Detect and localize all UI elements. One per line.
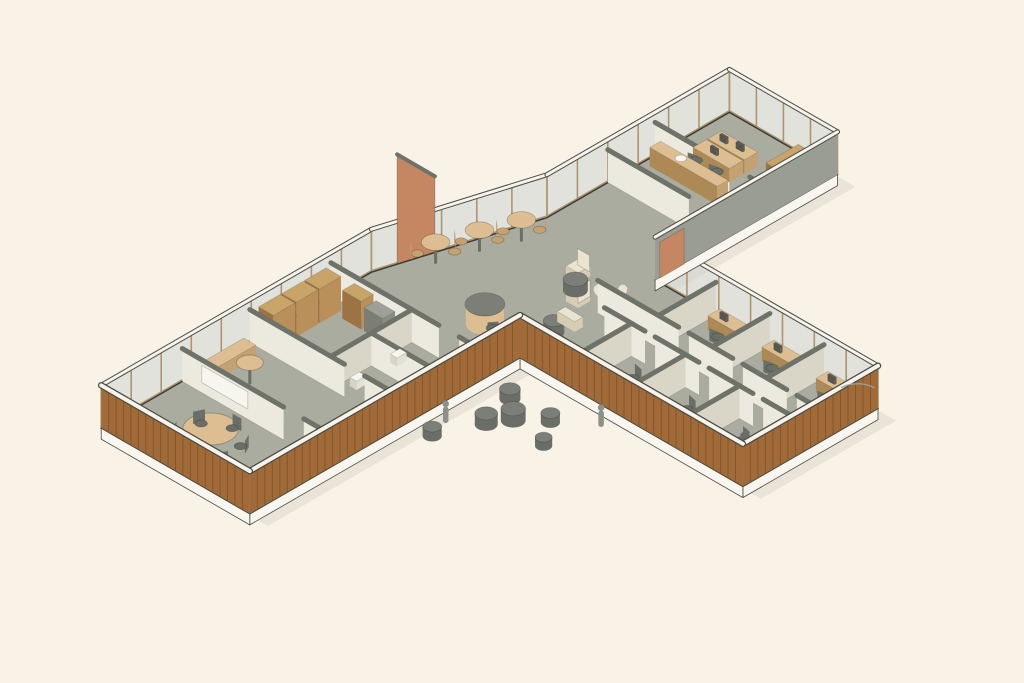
person-figure xyxy=(442,401,449,421)
floor-plan-scene-canvas xyxy=(0,0,1024,683)
outdoor-pouf xyxy=(475,407,498,431)
sink xyxy=(675,155,686,162)
lounge-coffee-table xyxy=(563,272,588,297)
outdoor-pouf xyxy=(535,432,552,451)
outdoor-pouf xyxy=(423,421,442,441)
outdoor-pouf xyxy=(541,408,560,428)
outdoor-pouf xyxy=(501,402,526,428)
person-figure xyxy=(598,404,605,424)
reception-desk-top xyxy=(465,293,505,316)
isometric-floor-plan-rendering xyxy=(0,0,1024,683)
